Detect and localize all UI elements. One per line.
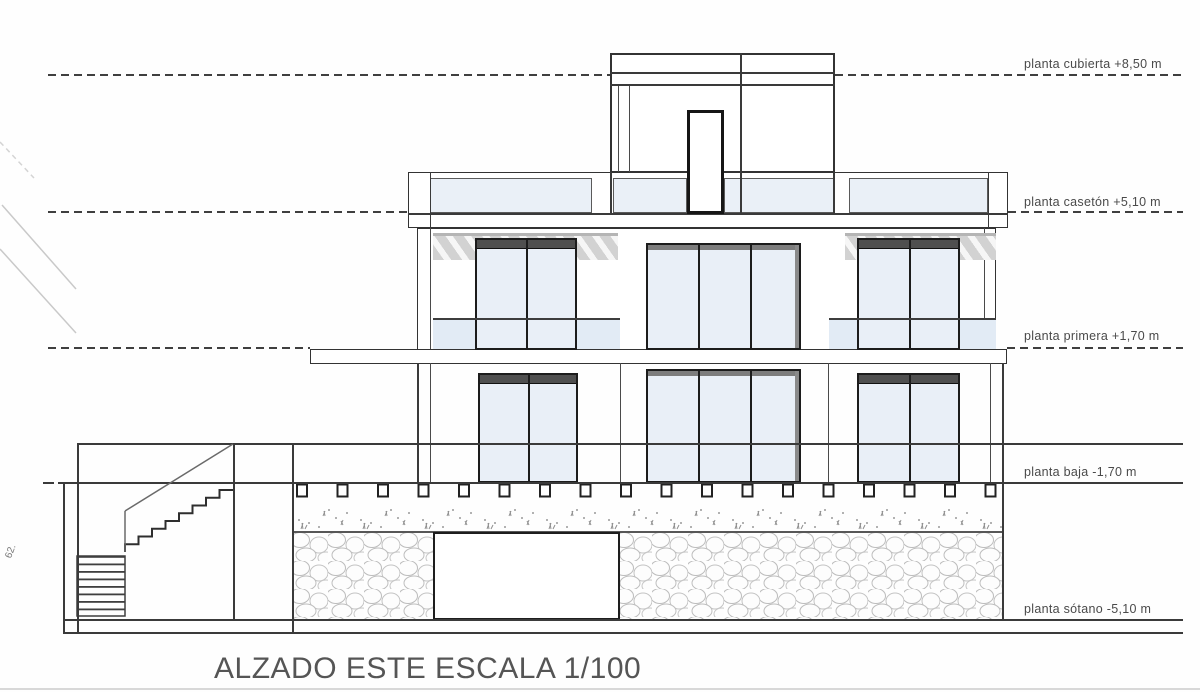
bottom-slab-line [63, 632, 1183, 634]
fence-posts [296, 484, 1002, 498]
level-label-caseton: planta casetón +5,10 m [1024, 195, 1161, 209]
vegetation-strip [292, 498, 1002, 532]
level-label-baja: planta baja -1,70 m [1024, 465, 1137, 479]
level-label-sotano: planta sótano -5,10 m [1024, 602, 1151, 616]
level-label-cubierta: planta cubierta +8,50 m [1024, 57, 1162, 71]
staircase [77, 444, 233, 616]
level-line-sotano [63, 619, 1183, 621]
drawing-title: ALZADO ESTE ESCALA 1/100 [214, 652, 641, 686]
level-label-primera: planta primera +1,70 m [1024, 329, 1160, 343]
elevation-drawing: planta cubierta +8,50 m planta casetón +… [0, 0, 1200, 692]
sketch-lines [0, 142, 76, 333]
basement-wall-line [292, 443, 294, 633]
lower-stair-hatch [77, 556, 125, 616]
stair-wall-line [233, 445, 235, 620]
basement-opening [433, 532, 620, 620]
handrail-line [125, 444, 233, 511]
scan-edge-line [0, 688, 1200, 690]
retaining-wall-line [63, 482, 65, 633]
retaining-wall-line [77, 443, 79, 633]
stone-wall-hatch [292, 533, 1002, 619]
